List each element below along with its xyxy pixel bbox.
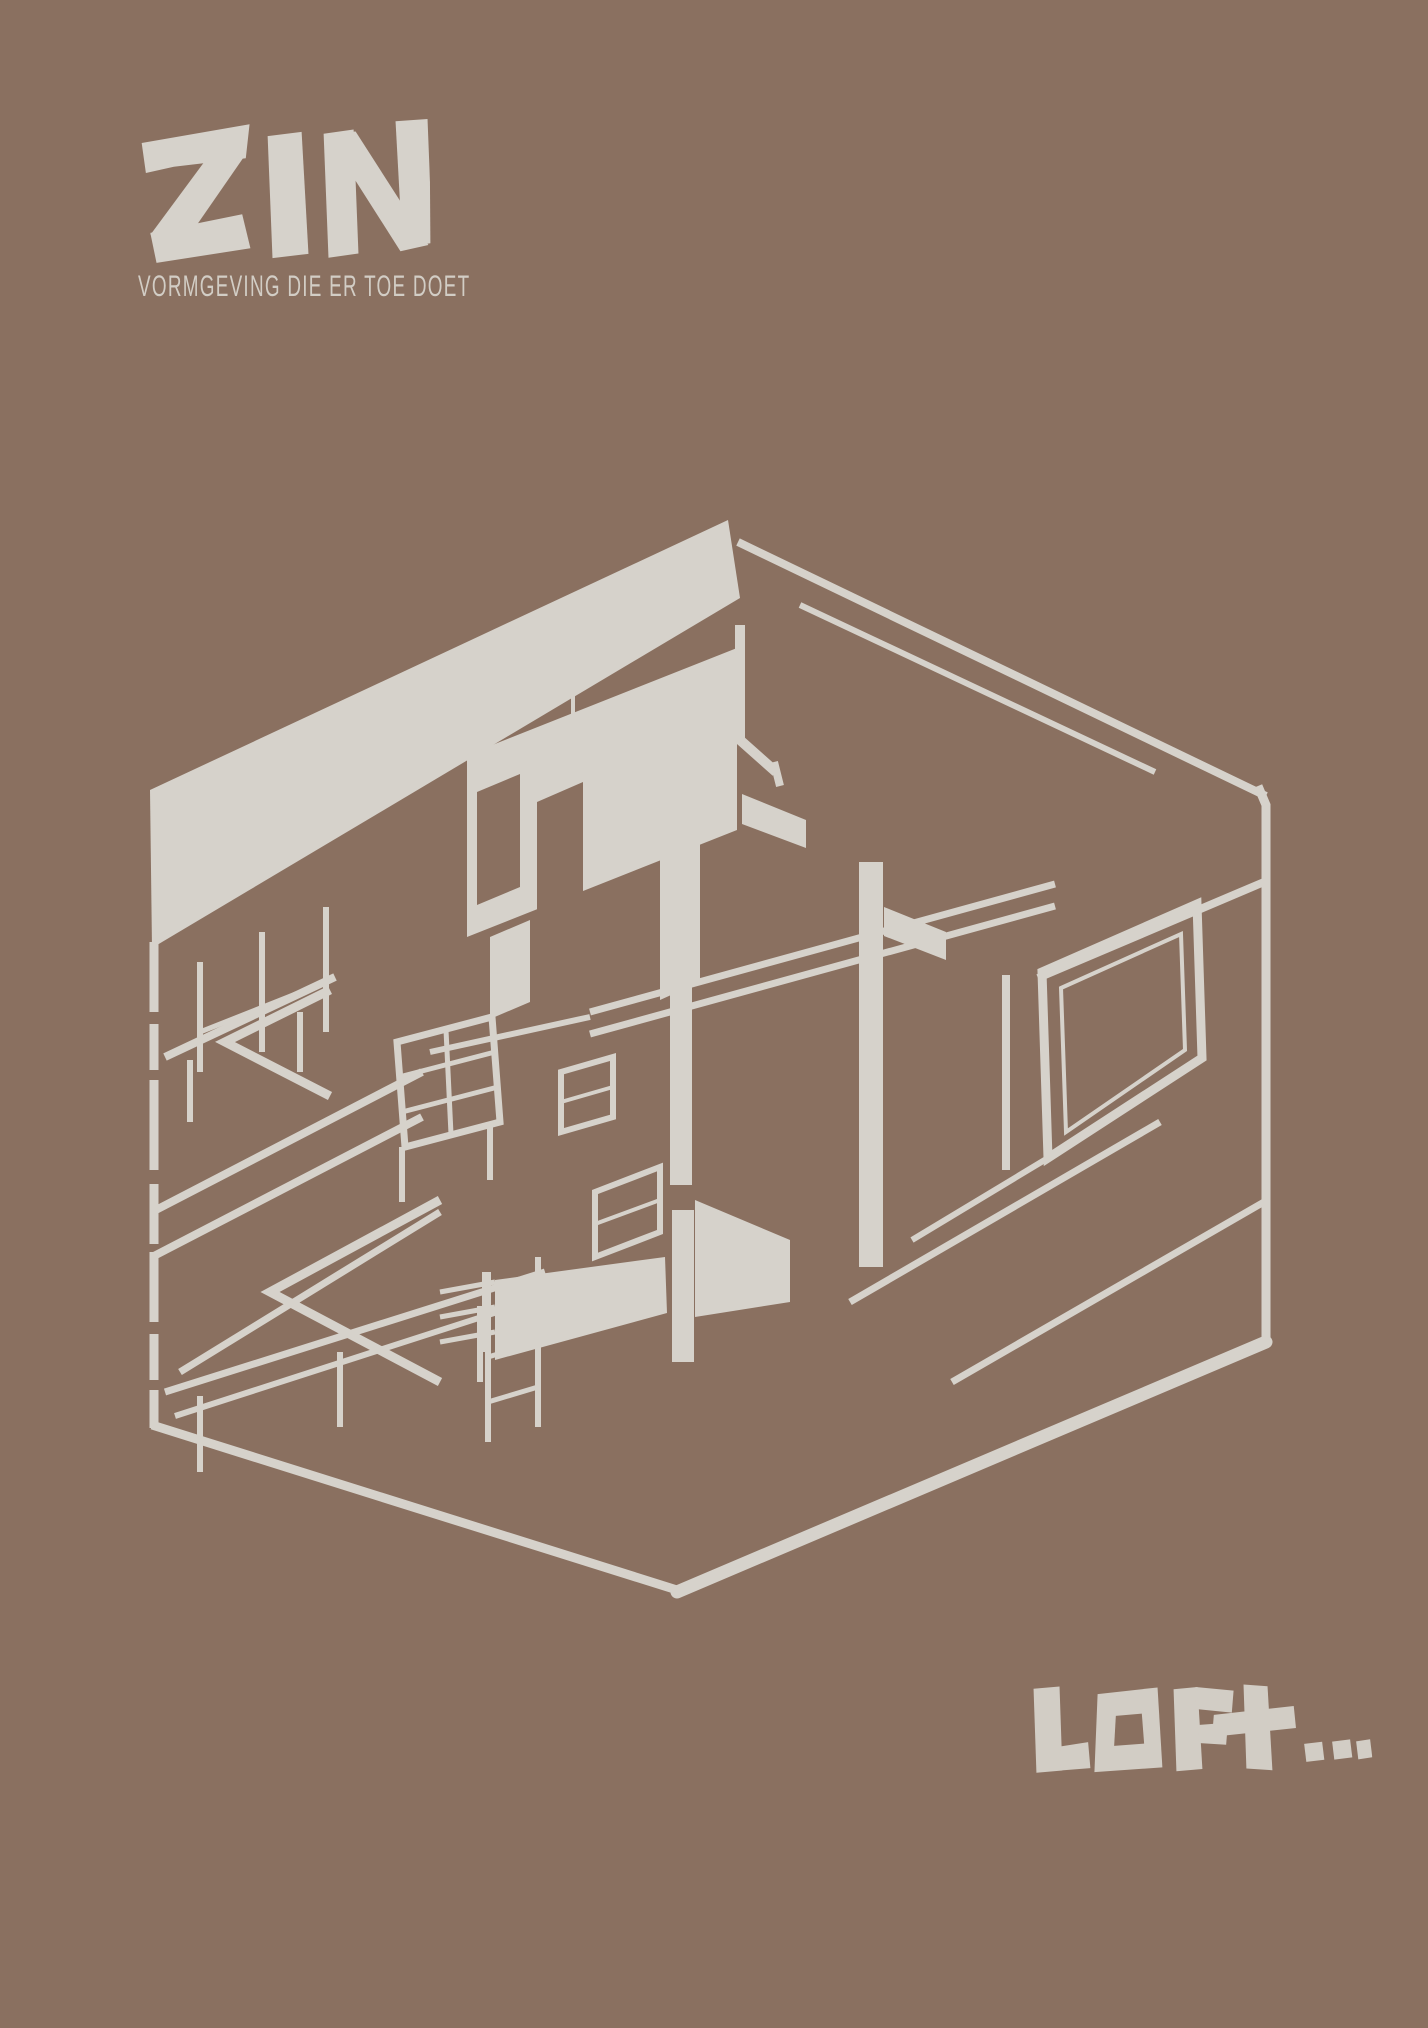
sketch-right-window	[1038, 882, 1264, 1158]
sketch-shelving-unit	[397, 1017, 500, 1202]
loft-ellipsis-dots	[1304, 1739, 1372, 1762]
poster-page: VORMGEVING DIE ER TOE DOET	[0, 0, 1428, 2028]
brand-block: VORMGEVING DIE ER TOE DOET	[138, 112, 430, 264]
loft-letter-l	[1034, 1686, 1091, 1773]
sketch-bench	[165, 1257, 550, 1472]
logo-letter-n	[324, 119, 431, 258]
sketch-small-frames	[561, 1057, 660, 1257]
sketch-floor-lines	[850, 1122, 1264, 1382]
loft-sketch-illustration	[140, 510, 1280, 1610]
brand-tagline: VORMGEVING DIE ER TOE DOET	[138, 270, 466, 304]
sketch-sideboard	[440, 1200, 790, 1360]
logo-letter-i	[268, 132, 309, 258]
loft-title	[1028, 1681, 1373, 1781]
logo-letter-z	[142, 124, 251, 263]
loft-letter-o	[1094, 1687, 1163, 1772]
sketch-left-interior	[152, 907, 440, 1382]
sketch-hook-column	[740, 625, 780, 786]
zin-logo	[137, 111, 430, 265]
